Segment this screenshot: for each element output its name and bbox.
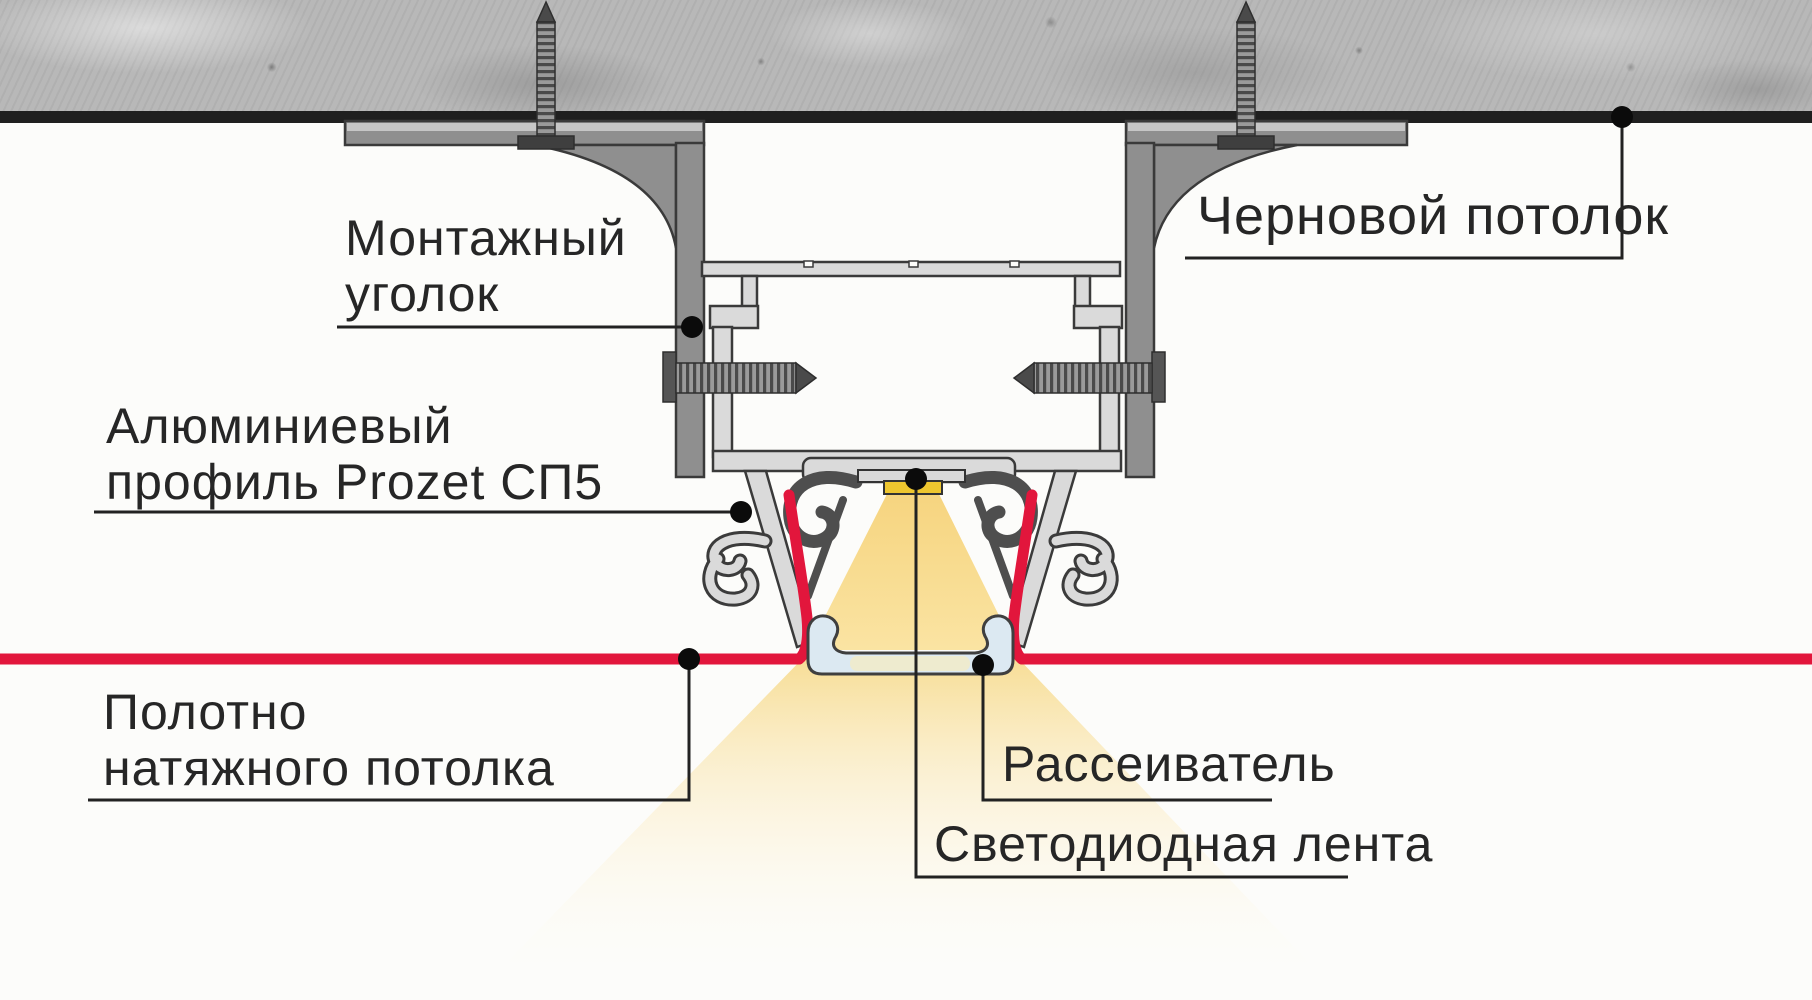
rough-ceiling-edge [0,111,1812,123]
callout-dot-rough-ceiling [1611,106,1633,128]
label-mounting-bracket: Монтажный уголок [345,210,627,322]
label-aluminum-profile: Алюминиевый профиль Prozet СП5 [106,398,603,510]
callout-dot-led-strip [905,468,927,490]
diagram-stage: Монтажный уголок Алюминиевый профиль Pro… [0,0,1812,1000]
label-aluminum-profile-line1: Алюминиевый [106,398,603,454]
label-diffuser: Рассеиватель [1002,736,1336,792]
mounting-angle-right [1126,121,1407,477]
label-mounting-bracket-line2: уголок [345,266,627,322]
harpoon-hook-right [1056,538,1111,599]
label-aluminum-profile-line2: профиль Prozet СП5 [106,454,603,510]
label-stretch-ceiling: Полотно натяжного потолка [103,684,555,796]
callout-dot-aluminum-profile [730,501,752,523]
label-stretch-ceiling-line1: Полотно [103,684,555,740]
label-mounting-bracket-line1: Монтажный [345,210,627,266]
callout-dot-stretch-ceiling [678,648,700,670]
callout-dot-diffuser [972,654,994,676]
label-led-strip: Светодиодная лента [934,816,1433,872]
harpoon-hook-left [710,538,765,599]
label-stretch-ceiling-line2: натяжного потолка [103,740,555,796]
label-rough-ceiling: Черновой потолок [1197,188,1669,244]
callout-dot-mounting-bracket [681,316,703,338]
